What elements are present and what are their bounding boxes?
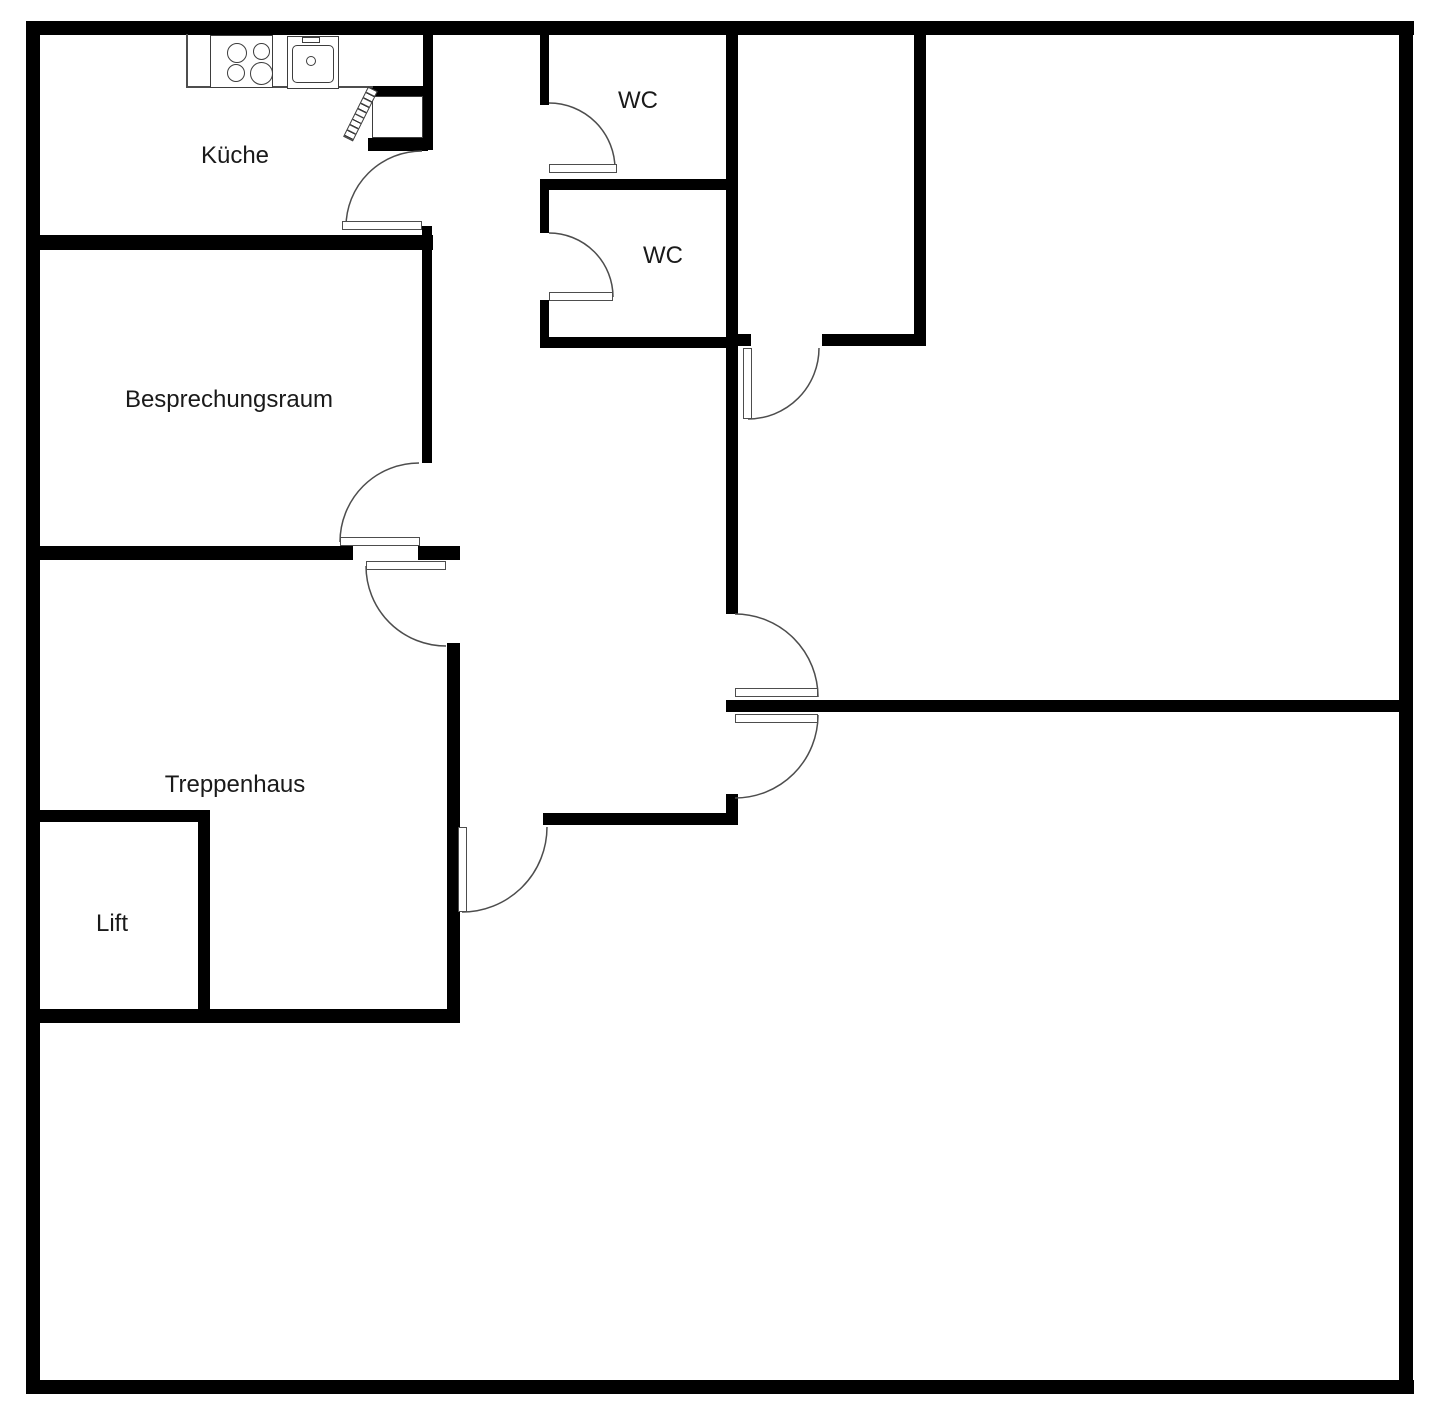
- meeting-room-door-leaf-lower: [366, 561, 446, 570]
- small-room-door-arc: [748, 348, 819, 419]
- kitchen-door-leaf: [342, 221, 422, 230]
- meeting-room-door-arc-lower: [366, 566, 446, 646]
- hall-double-door-arc-upper: [735, 614, 818, 697]
- outer-wall-left: [26, 21, 40, 1394]
- meeting-room-bottom-wall: [40, 546, 353, 560]
- staircase-hall-door-leaf: [458, 827, 467, 912]
- wc-middle-left-wall-upper: [540, 190, 549, 233]
- wc-middle-bottom-wall: [540, 337, 738, 348]
- stove-burner-icon: [250, 62, 273, 85]
- sink-drain: [306, 56, 316, 66]
- room-label-besprechungsraum: Besprechungsraum: [29, 386, 429, 414]
- kitchen-counter-left-edge: [186, 34, 188, 88]
- room-label-lift: Lift: [12, 910, 212, 938]
- sink-faucet-icon: [302, 37, 320, 43]
- room-label-treppenhaus: Treppenhaus: [135, 771, 335, 799]
- right-wing-dividing-wall: [726, 700, 1399, 712]
- stove-burner-icon: [253, 43, 270, 60]
- floor-plan: Küche WC WC Besprechungsraum Treppenhaus…: [0, 0, 1440, 1417]
- staircase-bottom-wall: [26, 1009, 460, 1023]
- meeting-room-door-arc-upper: [340, 463, 419, 542]
- lift-top-wall: [36, 810, 210, 822]
- wc-middle-left-wall-lower: [540, 300, 549, 341]
- room-label-wc-top: WC: [538, 87, 738, 115]
- outer-wall-bottom: [26, 1380, 1414, 1394]
- outer-wall-right: [1399, 21, 1413, 1394]
- meeting-room-corner-block: [418, 546, 460, 560]
- hall-double-door-arc-lower: [735, 715, 818, 798]
- kitchen-bottom-wall: [40, 235, 433, 250]
- hall-double-door-leaf-upper: [735, 688, 818, 697]
- room-label-wc-middle: WC: [563, 242, 763, 270]
- room-label-kueche: Küche: [135, 142, 335, 170]
- meeting-room-door-leaf-upper: [340, 537, 420, 546]
- wc-top-bottom-wall: [540, 179, 738, 190]
- small-room-door-leaf: [743, 348, 752, 419]
- wc-middle-door-leaf: [549, 292, 613, 301]
- kitchen-shaft-bottom-wall: [368, 138, 428, 151]
- small-room-bottom-wall: [822, 334, 926, 346]
- staircase-hall-door-arc: [462, 827, 547, 912]
- corridor-wall-upper: [726, 33, 738, 614]
- stove-burner-icon: [227, 64, 245, 82]
- outer-wall-top: [26, 21, 1414, 35]
- stove-burner-icon: [227, 43, 247, 63]
- small-room-bottom-stub: [738, 334, 751, 346]
- wc-top-door-leaf: [549, 164, 617, 173]
- small-room-right-wall: [914, 33, 926, 346]
- hall-bottom-wall: [543, 813, 734, 825]
- kitchen-shaft-niche: [372, 96, 423, 138]
- meeting-room-right-wall: [422, 226, 432, 463]
- hall-double-door-leaf-lower: [735, 714, 818, 723]
- kitchen-door-arc: [346, 151, 422, 227]
